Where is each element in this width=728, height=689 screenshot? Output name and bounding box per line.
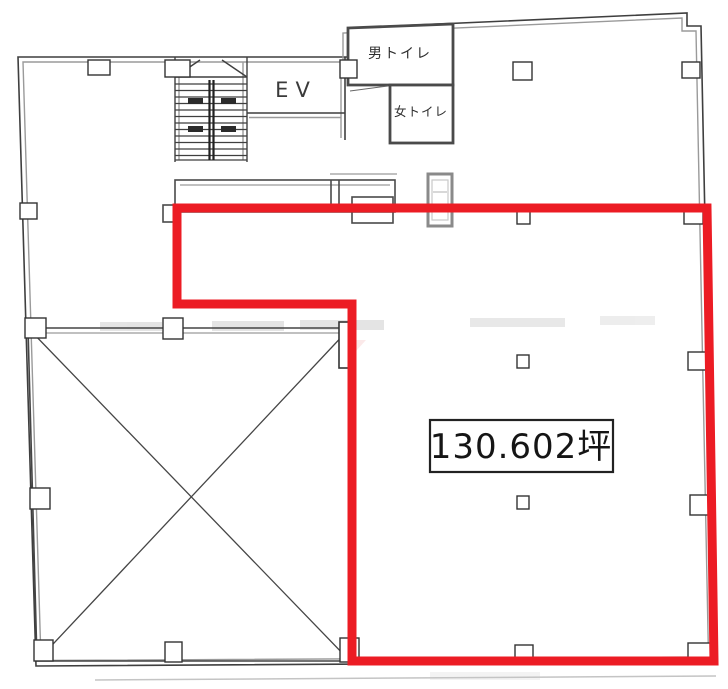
column [517,211,530,224]
void-diagonal [30,330,348,659]
stair-steps [175,84,247,160]
building-outline-inner [23,18,709,661]
column [682,62,700,78]
area-label: 130.602坪 [430,427,613,467]
column [517,355,529,368]
column [513,62,532,80]
corridor [163,174,397,223]
column [340,60,357,78]
building-outline [18,13,714,666]
column [165,60,190,77]
floorplan-svg: EV 男トイレ 女トイレ [0,0,728,689]
toilet-block: 男トイレ 女トイレ [348,24,453,143]
void-diagonal [39,330,348,659]
mens-toilet-label: 男トイレ [368,46,432,62]
ev-room: EV [247,57,345,140]
column [517,496,529,509]
floor-shadow-line [95,676,716,680]
door-swing-line [350,86,388,91]
column [163,318,183,339]
womens-toilet-label: 女トイレ [394,104,448,119]
column [165,642,182,662]
column [88,60,110,75]
column [34,640,53,661]
area-label-box: 130.602坪 [430,420,613,472]
floorplan-image: EV 男トイレ 女トイレ [0,0,728,689]
ev-label: EV [275,78,317,102]
column [25,318,46,338]
void-area [28,322,352,661]
column [30,488,50,509]
column [20,203,37,219]
pipe-shaft [428,174,452,226]
watermark [100,316,655,680]
columns [20,60,713,663]
